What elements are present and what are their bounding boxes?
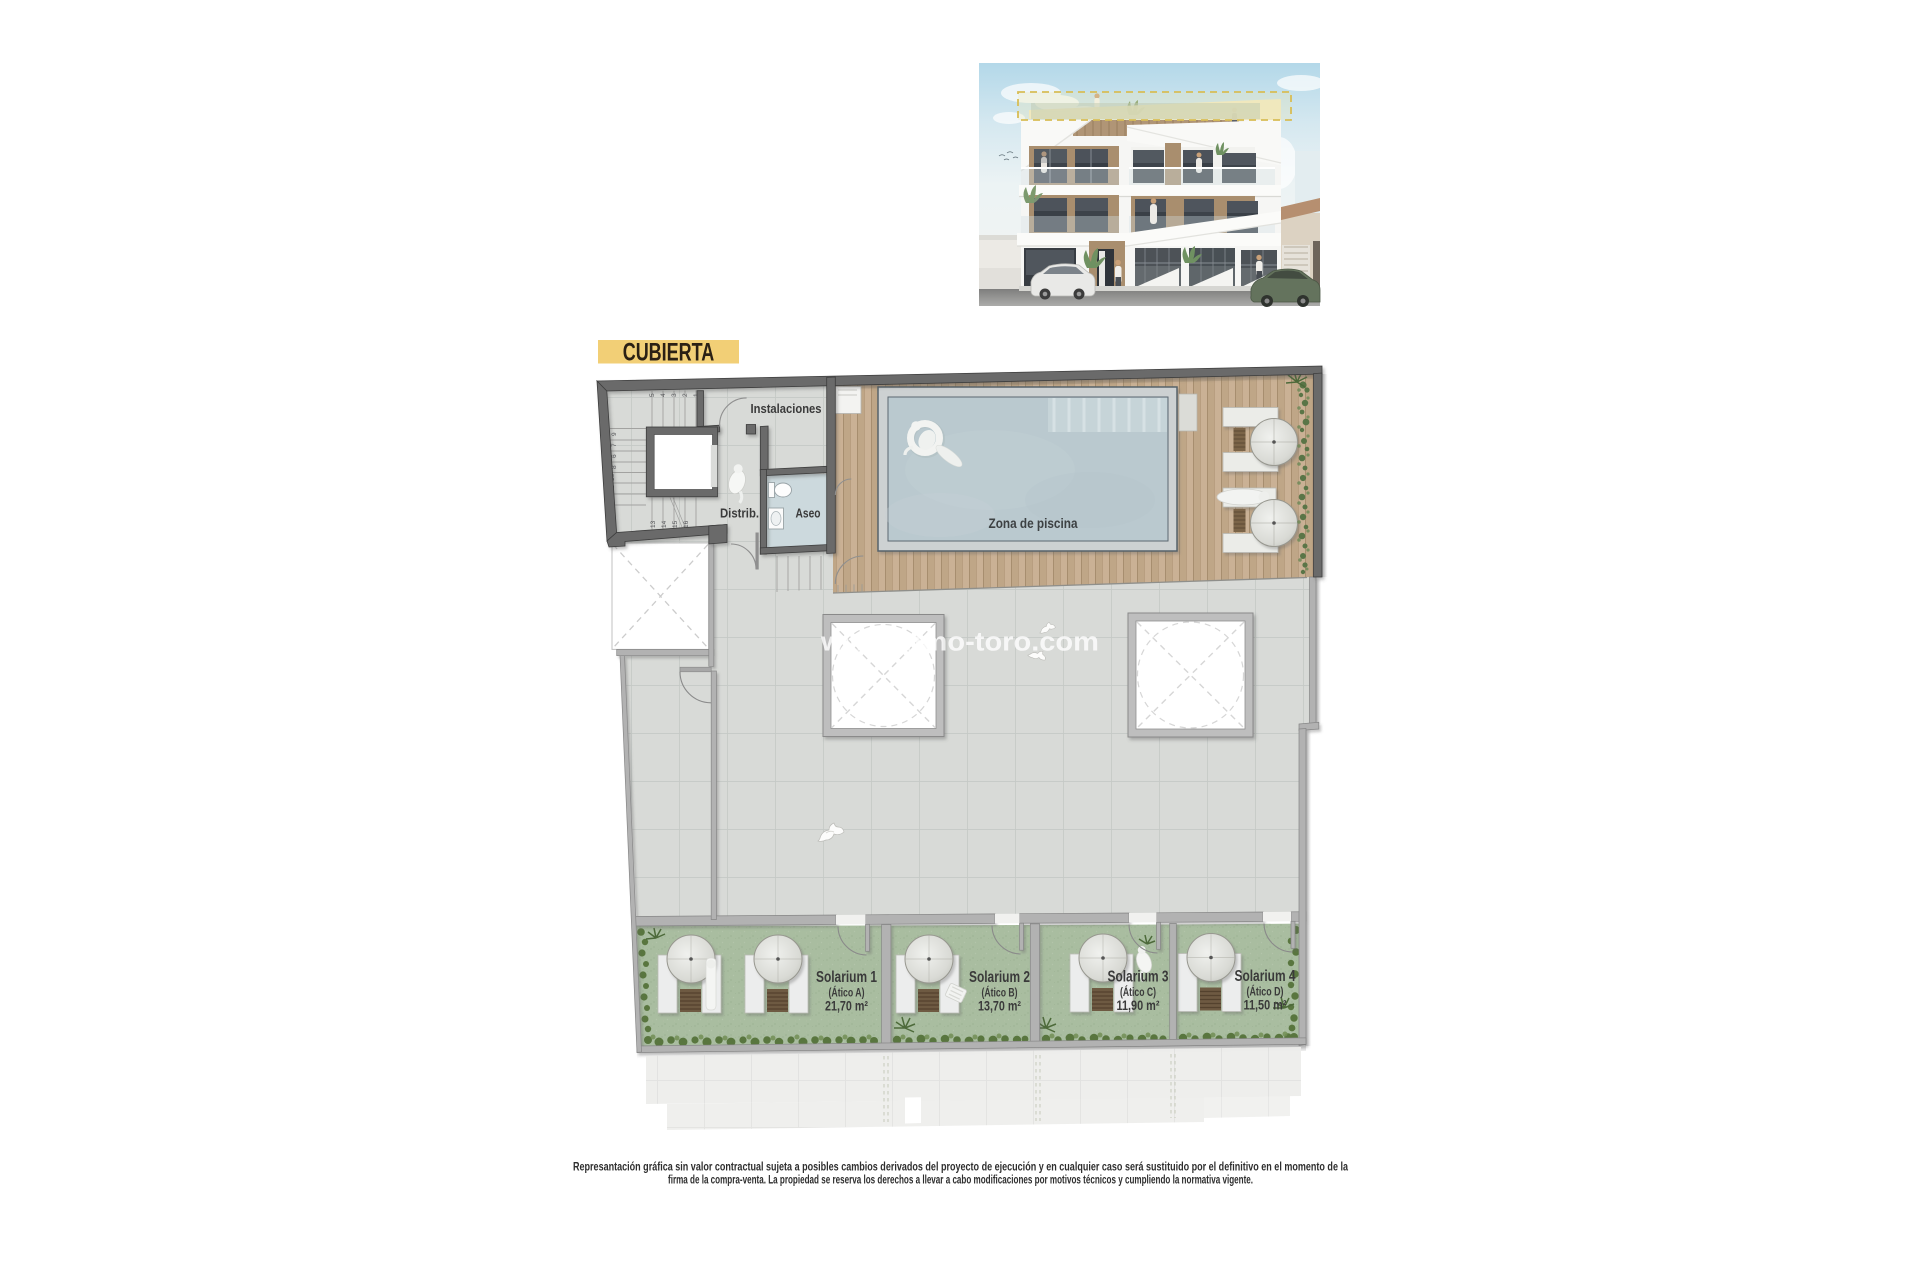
svg-text:11,90 m²: 11,90 m² (1117, 998, 1160, 1013)
svg-text:21,70 m²: 21,70 m² (825, 999, 868, 1014)
svg-text:11,50 m²: 11,50 m² (1244, 998, 1287, 1013)
svg-text:Zona de piscina: Zona de piscina (989, 515, 1078, 531)
svg-text:5: 5 (649, 393, 656, 397)
svg-text:4: 4 (660, 393, 667, 397)
svg-text:3: 3 (671, 393, 678, 397)
svg-text:7: 7 (611, 443, 618, 447)
svg-text:Aseo: Aseo (796, 507, 821, 521)
svg-text:Solarium 1: Solarium 1 (816, 969, 877, 986)
svg-text:2: 2 (682, 393, 689, 397)
svg-text:firma de la compra-venta. La p: firma de la compra-venta. La propiedad s… (668, 1173, 1253, 1187)
svg-text:13: 13 (650, 520, 657, 528)
svg-text:14: 14 (661, 520, 668, 528)
svg-text:Solarium 4: Solarium 4 (1235, 968, 1296, 985)
svg-text:9: 9 (611, 432, 618, 436)
svg-text:Solarium 2: Solarium 2 (969, 969, 1030, 986)
svg-text:6: 6 (611, 454, 618, 458)
svg-text:CUBIERTA: CUBIERTA (623, 338, 715, 367)
svg-text:Distrib.: Distrib. (720, 507, 759, 521)
svg-text:www.inmo-toro.com: www.inmo-toro.com (820, 627, 1099, 657)
svg-text:15: 15 (672, 520, 679, 528)
svg-text:Represantación gráfica sin val: Represantación gráfica sin valor contrac… (573, 1160, 1348, 1174)
svg-text:13,70 m²: 13,70 m² (978, 999, 1021, 1014)
svg-text:Instalaciones: Instalaciones (751, 402, 822, 416)
svg-text:Solarium 3: Solarium 3 (1108, 969, 1169, 986)
